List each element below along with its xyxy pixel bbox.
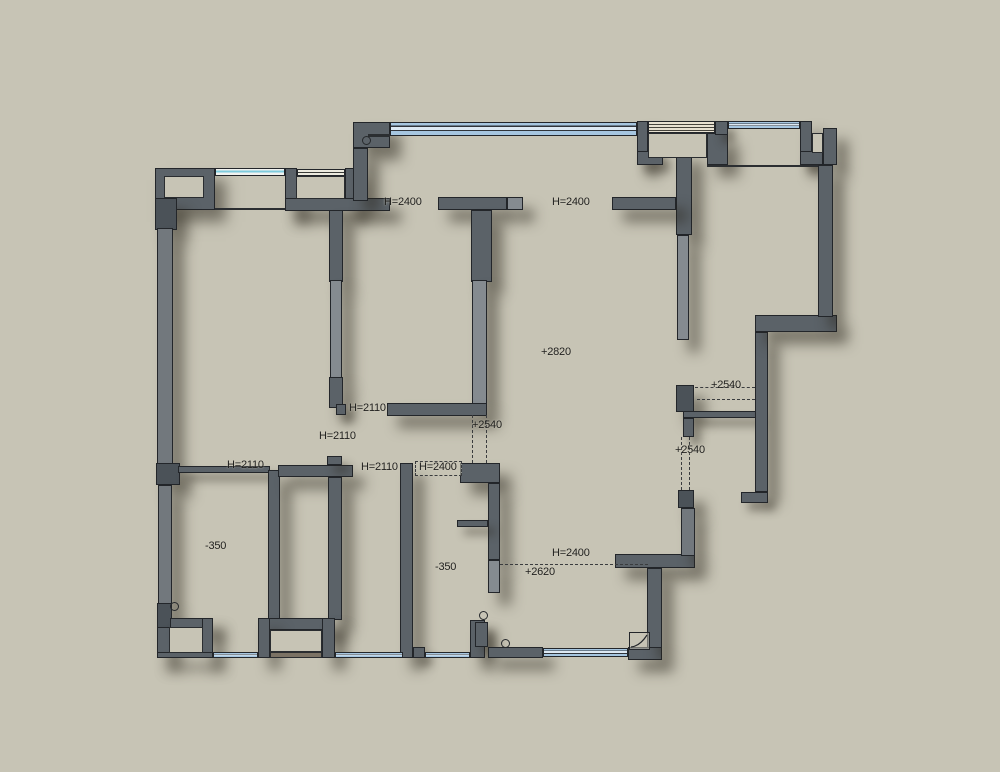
door-swing-icon [629,632,650,650]
door-jamb [676,385,694,412]
level-label: +2540 [675,444,705,456]
wall-segment [471,210,492,282]
height-label: H=2110 [361,461,398,473]
height-label: H=2400 [384,196,422,208]
floorplan-canvas: H=2400 H=2400 +2820 +2540 H=2110 +2540 H… [0,0,1000,772]
height-label: H=2400 [552,196,590,208]
door-hinge-icon [362,136,371,145]
level-label: +2620 [525,566,555,578]
closet-interior [164,176,204,198]
wall-segment [157,228,173,465]
wall-segment [328,477,342,620]
wall-segment [741,492,768,503]
window [425,652,470,658]
door-threshold [270,652,322,658]
wall-segment [327,456,342,465]
wall-segment [472,280,487,404]
door-swing-arc [630,633,649,649]
wall-segment [818,165,833,317]
door-hinge-icon [170,602,179,611]
window [297,169,345,176]
closet-interior [169,627,203,653]
wall-segment [488,483,500,560]
height-label: H=2400 [419,461,457,473]
closet-interior [270,630,322,652]
level-label: +2540 [711,379,741,391]
wall-segment [676,150,692,235]
wall-segment [681,508,695,556]
wall-segment [823,128,837,165]
wall-segment [268,470,280,620]
wall-segment [683,411,757,418]
height-label: H=2400 [552,547,590,559]
wall-segment [353,148,368,201]
wall-segment [612,197,676,210]
level-label: -350 [435,561,456,573]
dashed-line [697,399,755,400]
wall-segment [155,198,177,230]
wall-segment [615,554,695,568]
window [213,652,258,658]
wall-segment [475,622,488,647]
door-hinge-icon [479,611,488,620]
level-label: +2540 [472,419,502,431]
wall-segment [800,151,823,165]
wall-segment [715,121,728,135]
window [335,652,403,658]
door-hinge-icon [501,639,510,648]
window [390,122,637,136]
wall-segment [683,418,694,437]
height-label: H=2110 [349,402,386,414]
wall-segment [438,197,507,210]
balcony-interior [648,133,707,158]
wall-segment [258,618,270,658]
wall-face-line [215,208,285,210]
wall-segment [457,520,488,527]
wall-segment [488,647,543,658]
dashed-line [500,564,648,565]
height-label: H=2110 [227,459,264,471]
door-jamb [678,490,694,508]
bay-interior [296,176,345,199]
wall-segment [329,210,343,282]
wall-segment [507,197,523,210]
height-label: H=2110 [319,430,356,442]
wall-segment [158,485,172,605]
level-label: +2820 [541,346,571,358]
wall-segment [460,463,500,483]
wall-segment [336,404,346,415]
wall-segment [755,315,837,332]
window [543,648,628,657]
window [648,121,715,133]
wall-segment [330,280,342,378]
wall-segment [156,463,180,485]
wall-segment [677,235,689,340]
wall-segment [400,463,413,658]
wall-face-line [707,165,818,167]
wall-segment [755,332,768,492]
wall-segment [278,465,353,477]
wall-face-line [368,134,390,137]
wall-segment [322,618,335,658]
wall-segment [707,133,728,165]
level-label: -350 [205,540,226,552]
niche-interior [812,133,823,153]
window [215,168,285,176]
window [728,121,800,129]
wall-segment [413,647,425,658]
wall-segment [488,560,500,593]
